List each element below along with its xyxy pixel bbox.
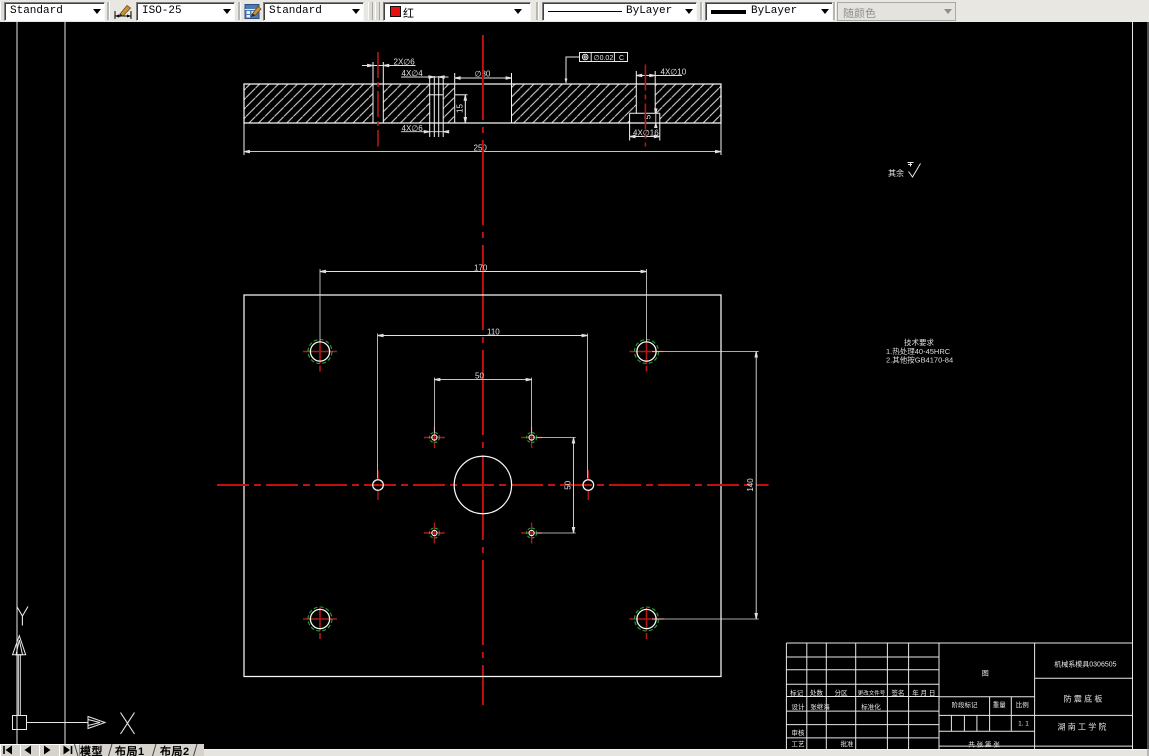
svg-text:防 震 底 板: 防 震 底 板 (1064, 694, 1103, 704)
svg-text:140: 140 (746, 478, 755, 492)
svg-text:阶段标记: 阶段标记 (952, 700, 979, 709)
svg-text:2X∅6: 2X∅6 (394, 58, 416, 67)
svg-text:标准化: 标准化 (861, 702, 881, 711)
svg-text:分区: 分区 (835, 688, 849, 697)
svg-text:更改文件号: 更改文件号 (858, 689, 886, 697)
svg-text:共 张 第 张: 共 张 第 张 (968, 740, 1000, 749)
svg-text:标记: 标记 (790, 688, 804, 697)
svg-text:4X∅4: 4X∅4 (402, 69, 424, 78)
svg-text:张继海: 张继海 (810, 702, 830, 711)
svg-text:C: C (619, 55, 624, 62)
svg-text:4X∅10: 4X∅10 (661, 68, 687, 77)
svg-text:1. 1: 1. 1 (1018, 721, 1029, 728)
svg-text:设计: 设计 (792, 702, 806, 711)
svg-text:170: 170 (474, 264, 488, 273)
svg-text:图: 图 (982, 670, 989, 678)
svg-text:批准: 批准 (841, 739, 855, 748)
svg-text:审核: 审核 (792, 728, 806, 737)
svg-text:比例: 比例 (1016, 700, 1029, 709)
svg-text:技术要求: 技术要求 (904, 337, 934, 347)
svg-text:2.其他按GB4170-84: 2.其他按GB4170-84 (886, 355, 953, 365)
svg-text:4X∅6: 4X∅6 (402, 124, 424, 133)
svg-text:110: 110 (487, 328, 500, 337)
svg-text:年 月 日: 年 月 日 (912, 688, 935, 697)
svg-text:处数: 处数 (810, 688, 824, 697)
svg-text:∅0.02: ∅0.02 (594, 55, 614, 62)
svg-text:签名: 签名 (892, 688, 905, 697)
svg-text:湖 南 工 学 院: 湖 南 工 学 院 (1058, 722, 1107, 732)
svg-text:机械系模具0306505: 机械系模具0306505 (1054, 660, 1116, 669)
svg-text:15: 15 (456, 104, 465, 113)
svg-text:50: 50 (475, 372, 484, 381)
svg-text:1.热处理40-45HRC: 1.热处理40-45HRC (886, 346, 951, 356)
svg-text:工艺: 工艺 (792, 740, 806, 748)
svg-text:250: 250 (474, 144, 488, 153)
svg-text:重量: 重量 (993, 701, 1007, 709)
svg-text:其余: 其余 (888, 168, 904, 178)
svg-text:50: 50 (564, 480, 573, 489)
